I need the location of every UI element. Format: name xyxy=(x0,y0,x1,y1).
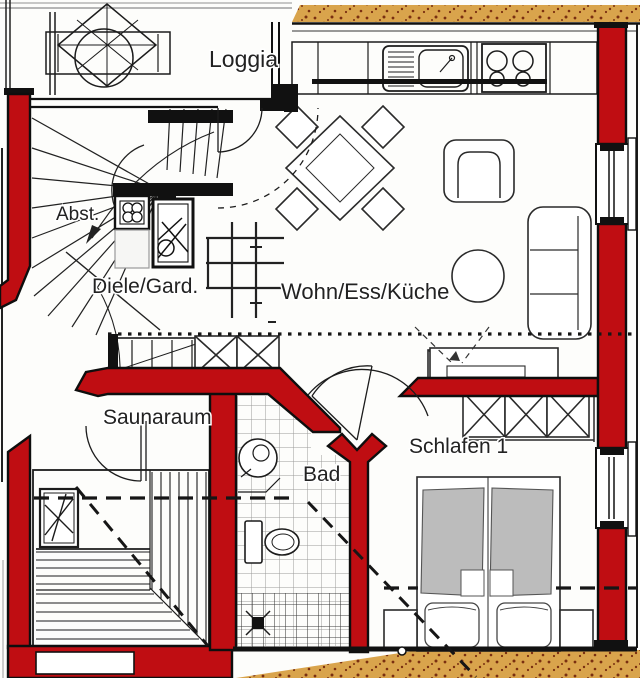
wall-segment xyxy=(148,110,233,123)
dining-set xyxy=(276,106,404,230)
duvet-fold xyxy=(461,570,484,596)
floor-plan: Loggia Abst. Diele/Gard. Wohn/Ess/Küche … xyxy=(0,0,640,678)
label-abstellraum: Abst. xyxy=(56,204,99,225)
wall-bedroom-top xyxy=(400,378,598,396)
label-bad: Bad xyxy=(303,463,340,486)
double-bed xyxy=(417,477,560,651)
nightstand xyxy=(384,610,417,650)
label-wohnen: Wohn/Ess/Küche xyxy=(281,279,449,304)
pillow xyxy=(425,603,479,647)
label-schlafen: Schlafen 1 xyxy=(409,435,508,458)
wall-right-lower xyxy=(598,528,626,642)
label-diele: Diele/Gard. xyxy=(92,275,198,298)
cabinet xyxy=(115,230,149,268)
wall-left-lower xyxy=(8,436,30,648)
window-living xyxy=(596,138,636,230)
label-loggia: Loggia xyxy=(209,46,278,72)
door-stop xyxy=(398,647,406,655)
coffee-table xyxy=(452,250,504,302)
top-exterior-band xyxy=(292,5,640,22)
label-sauna: Saunaraum xyxy=(103,406,212,429)
duvet-fold xyxy=(490,570,513,596)
floor-plan-page: Loggia Abst. Diele/Gard. Wohn/Ess/Küche … xyxy=(0,0,640,678)
nightstand xyxy=(560,610,593,650)
armchair xyxy=(444,140,514,202)
sink-round-icon xyxy=(239,439,277,477)
wall-segment xyxy=(113,183,233,196)
counter-front-edge xyxy=(312,79,547,84)
wall-right-middle xyxy=(598,224,626,448)
window-bedroom xyxy=(596,442,636,536)
wall-central xyxy=(210,372,236,650)
pillow xyxy=(497,603,551,647)
wall-right-upper xyxy=(598,26,626,144)
sauna-bench-niche xyxy=(36,652,134,674)
sofa xyxy=(528,207,591,339)
